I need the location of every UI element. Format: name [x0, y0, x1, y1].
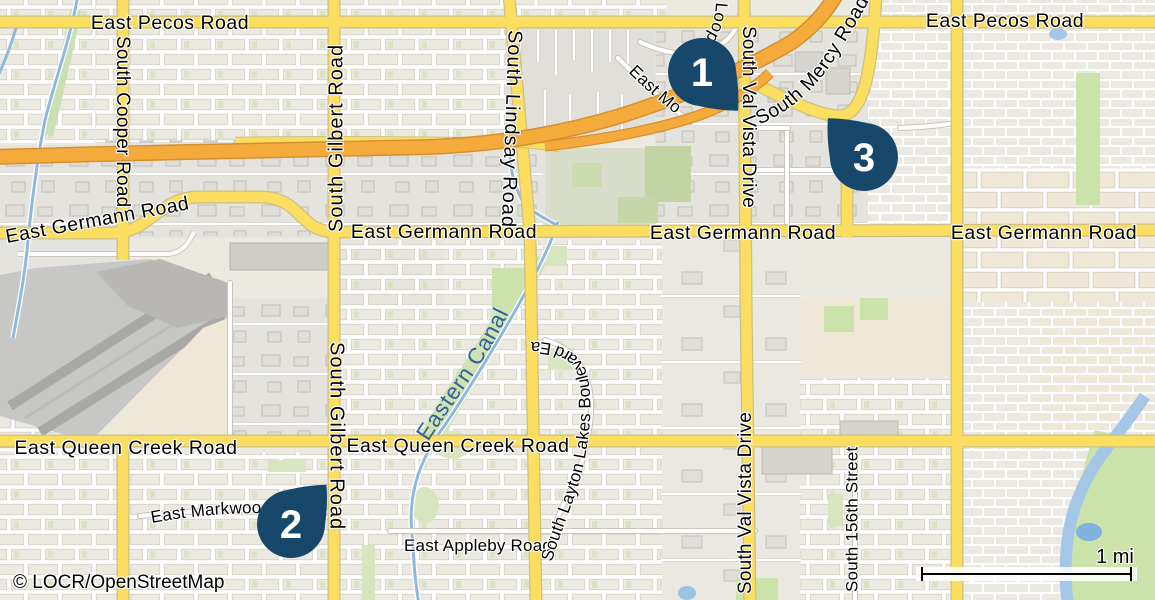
svg-text:2: 2 [280, 503, 302, 547]
svg-text:East Queen Creek Road: East Queen Creek Road [347, 435, 570, 457]
svg-text:East Pecos Road: East Pecos Road [91, 12, 249, 34]
svg-text:© LOCR/OpenStreetMap: © LOCR/OpenStreetMap [13, 572, 224, 593]
svg-text:1: 1 [691, 51, 713, 95]
svg-text:East Queen Creek Road: East Queen Creek Road [15, 437, 238, 459]
svg-text:South Val Vista Drive: South Val Vista Drive [735, 412, 756, 594]
svg-text:South Val Vista Drive: South Val Vista Drive [738, 26, 759, 208]
svg-text:3: 3 [853, 136, 875, 180]
svg-text:South Cooper Road: South Cooper Road [112, 36, 133, 207]
svg-text:South Gilbert Road: South Gilbert Road [325, 44, 347, 232]
svg-text:East Pecos Road: East Pecos Road [926, 10, 1084, 32]
svg-text:1 mi: 1 mi [1096, 546, 1134, 568]
svg-text:East Germann Road: East Germann Road [951, 222, 1137, 244]
svg-text:South Gilbert Road: South Gilbert Road [326, 342, 348, 530]
svg-text:East Appleby Road: East Appleby Road [404, 536, 552, 555]
svg-text:South 156th Street: South 156th Street [842, 447, 861, 592]
svg-text:East Germann Road: East Germann Road [650, 222, 836, 244]
